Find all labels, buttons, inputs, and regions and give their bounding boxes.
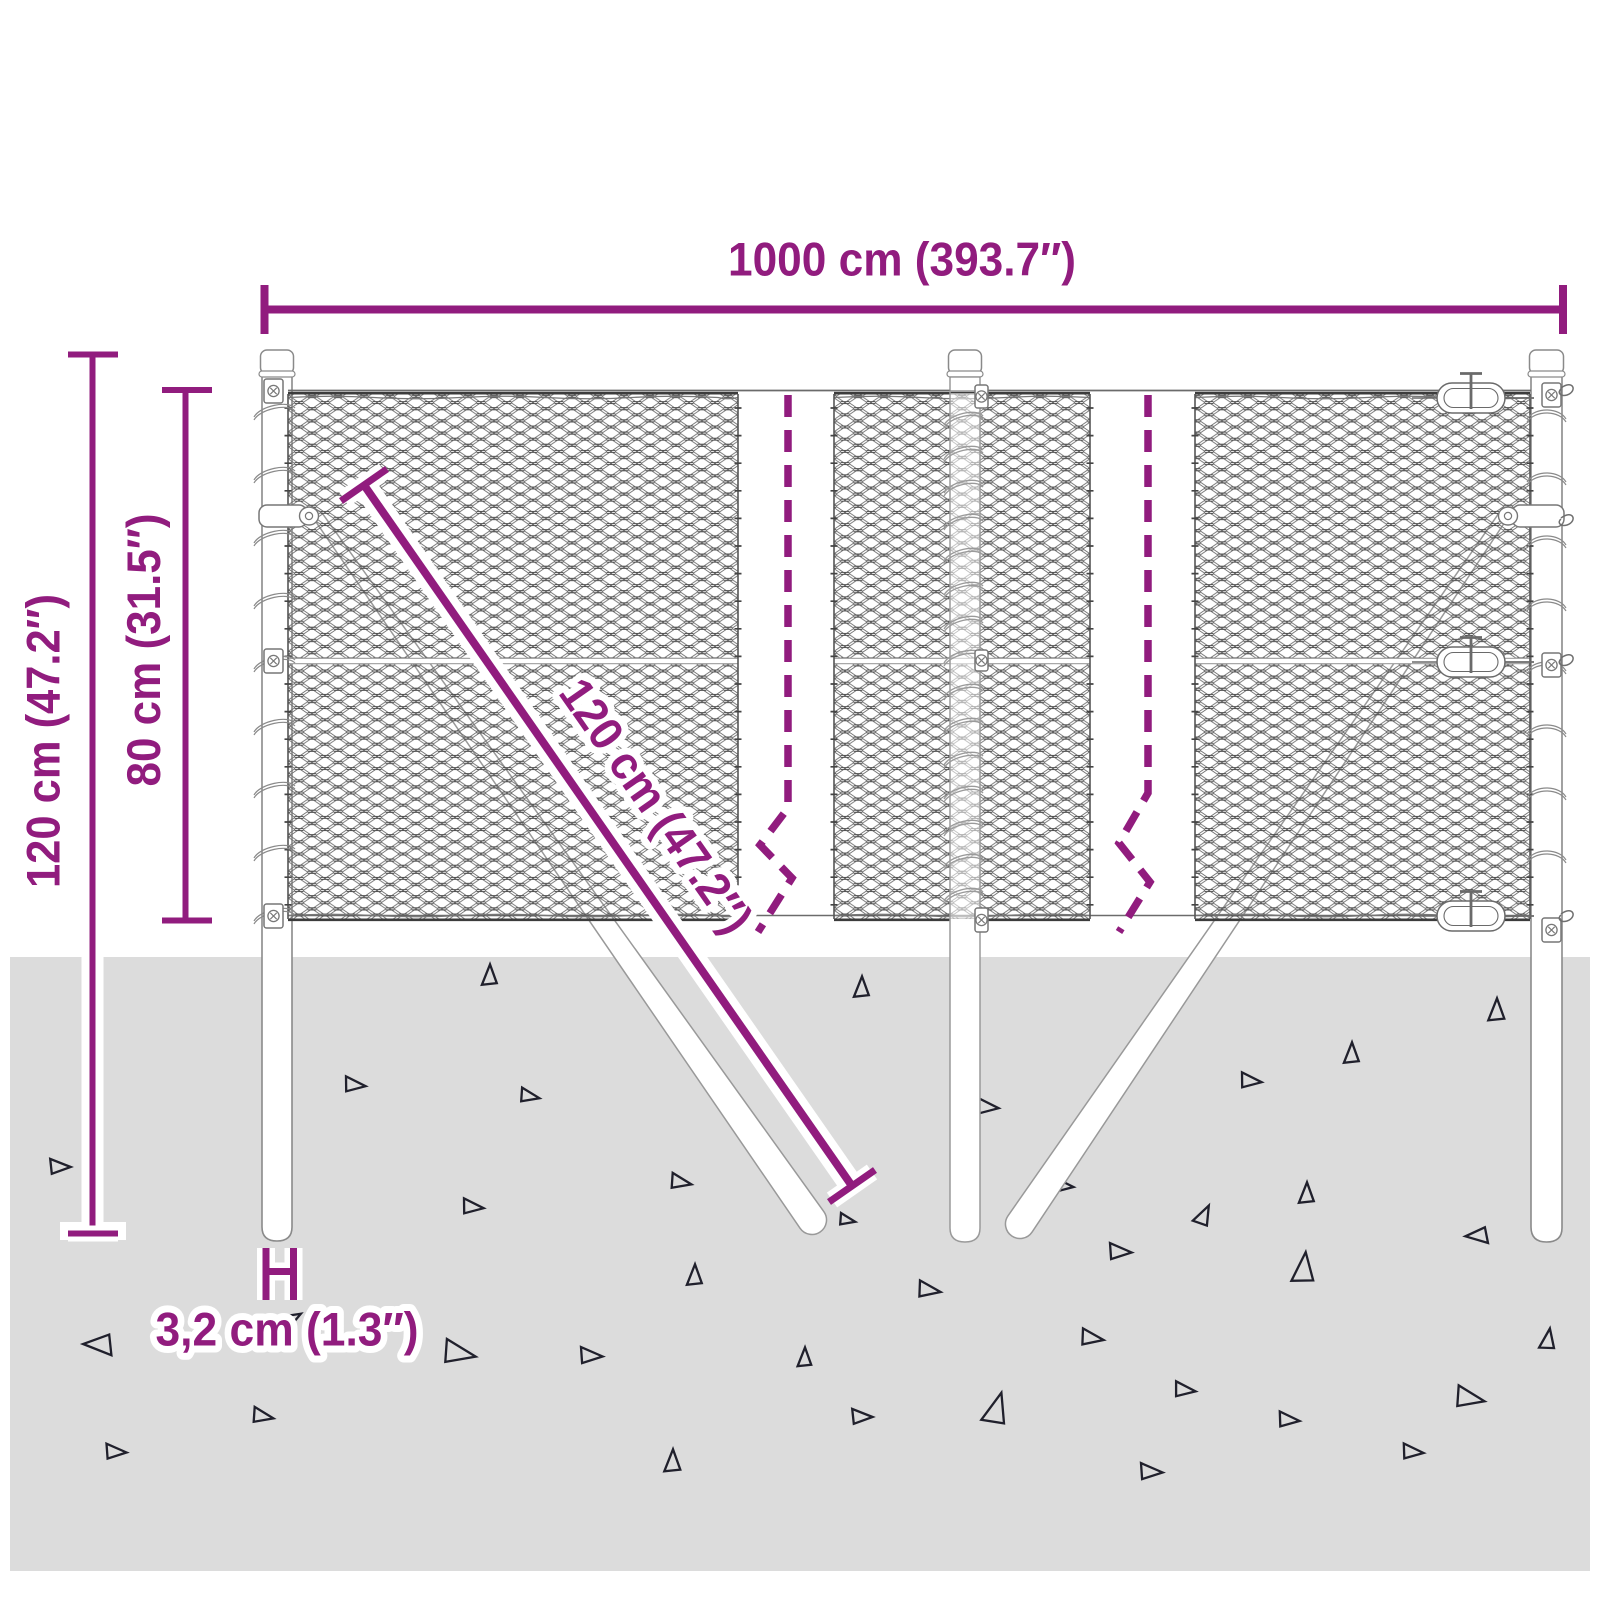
svg-text:120 cm (47.2″): 120 cm (47.2″) — [17, 594, 70, 888]
svg-text:1000 cm (393.7″): 1000 cm (393.7″) — [728, 233, 1076, 286]
svg-text:3,2 cm (1.3″): 3,2 cm (1.3″) — [156, 1303, 419, 1356]
svg-text:80 cm (31.5″): 80 cm (31.5″) — [117, 514, 170, 787]
